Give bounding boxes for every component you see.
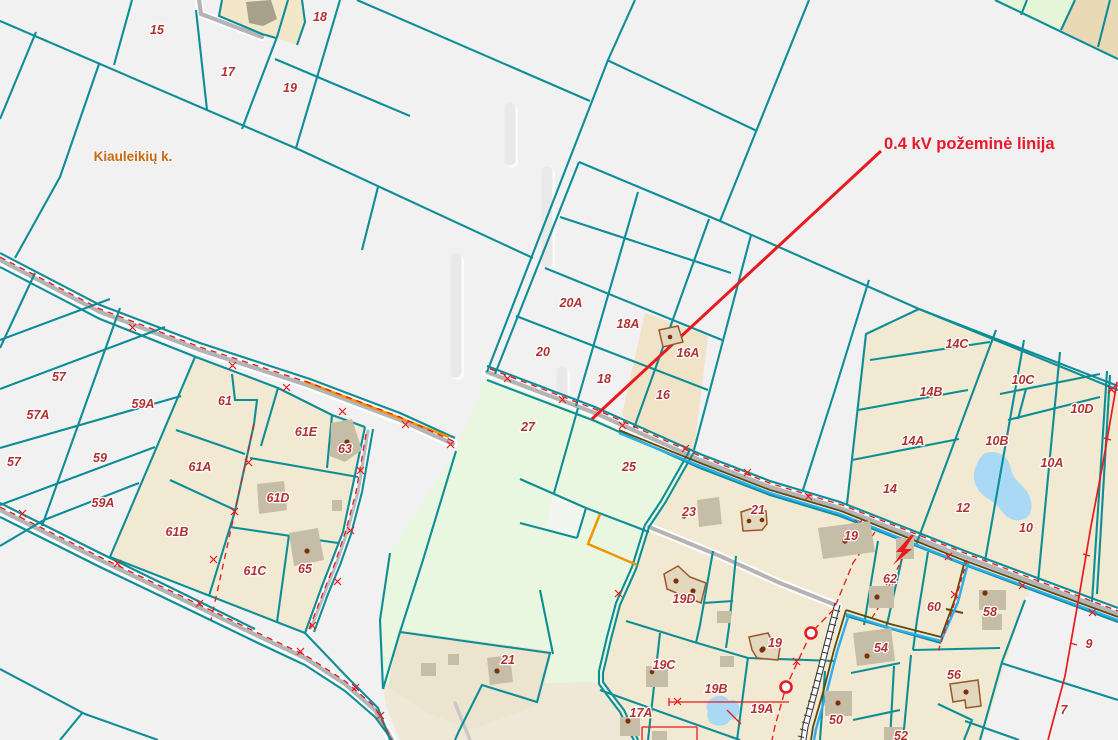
svg-text:27: 27 (520, 420, 536, 434)
svg-text:25: 25 (621, 460, 637, 474)
svg-text:20: 20 (535, 345, 550, 359)
svg-text:61A: 61A (189, 460, 212, 474)
svg-text:7: 7 (1061, 703, 1069, 717)
svg-text:59A: 59A (92, 496, 115, 510)
svg-text:14C: 14C (946, 337, 970, 351)
svg-text:16: 16 (656, 388, 671, 402)
svg-text:19: 19 (283, 81, 297, 95)
svg-text:58: 58 (983, 605, 997, 619)
svg-text:14B: 14B (920, 385, 943, 399)
svg-text:19: 19 (844, 529, 858, 543)
svg-text:62: 62 (883, 572, 897, 586)
svg-text:61C: 61C (244, 564, 268, 578)
svg-text:61D: 61D (267, 491, 290, 505)
svg-text:56: 56 (947, 668, 962, 682)
svg-text:16A: 16A (677, 346, 700, 360)
svg-text:15: 15 (150, 23, 165, 37)
svg-text:20A: 20A (559, 296, 583, 310)
svg-text:17A: 17A (630, 706, 653, 720)
svg-text:21: 21 (500, 653, 515, 667)
svg-text:Kiauleikių k.: Kiauleikių k. (94, 149, 173, 164)
svg-text:10: 10 (1019, 521, 1033, 535)
svg-text:57: 57 (52, 370, 67, 384)
svg-text:18A: 18A (617, 317, 640, 331)
svg-text:18: 18 (313, 10, 327, 24)
svg-text:14: 14 (883, 482, 897, 496)
svg-text:17: 17 (221, 65, 236, 79)
svg-text:63: 63 (338, 442, 352, 456)
svg-text:10B: 10B (986, 434, 1009, 448)
svg-text:59: 59 (93, 451, 107, 465)
svg-text:52: 52 (894, 729, 908, 740)
svg-text:60: 60 (927, 600, 941, 614)
svg-text:12: 12 (956, 501, 970, 515)
svg-text:19C: 19C (653, 658, 677, 672)
svg-text:65: 65 (298, 562, 313, 576)
svg-text:57A: 57A (27, 408, 50, 422)
svg-text:54: 54 (874, 641, 888, 655)
svg-text:0.4 kV požeminė linija: 0.4 kV požeminė linija (884, 135, 1055, 153)
svg-text:61B: 61B (166, 525, 189, 539)
svg-text:19B: 19B (705, 682, 728, 696)
svg-text:21: 21 (750, 503, 765, 517)
svg-text:57: 57 (7, 455, 22, 469)
svg-text:10C: 10C (1012, 373, 1036, 387)
svg-text:19: 19 (768, 636, 782, 650)
svg-text:14A: 14A (902, 434, 925, 448)
svg-text:9: 9 (1086, 637, 1093, 651)
svg-text:23: 23 (681, 505, 696, 519)
svg-text:19A: 19A (751, 702, 774, 716)
svg-text:10A: 10A (1041, 456, 1064, 470)
svg-text:50: 50 (829, 713, 843, 727)
svg-text:61: 61 (218, 394, 232, 408)
svg-text:18: 18 (597, 372, 611, 386)
svg-text:19D: 19D (673, 592, 696, 606)
svg-text:10D: 10D (1071, 402, 1094, 416)
svg-text:59A: 59A (132, 397, 155, 411)
svg-text:61E: 61E (295, 425, 318, 439)
